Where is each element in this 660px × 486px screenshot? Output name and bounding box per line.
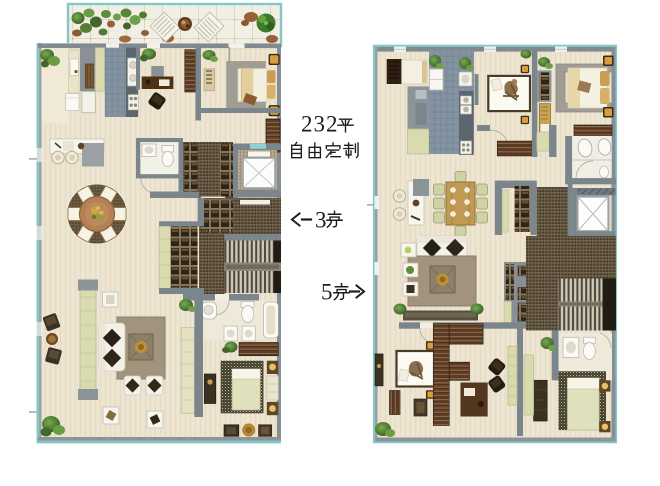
svg-text:3: 3 (315, 208, 327, 233)
svg-text:5: 5 (321, 280, 333, 305)
svg-text:232: 232 (301, 112, 339, 137)
